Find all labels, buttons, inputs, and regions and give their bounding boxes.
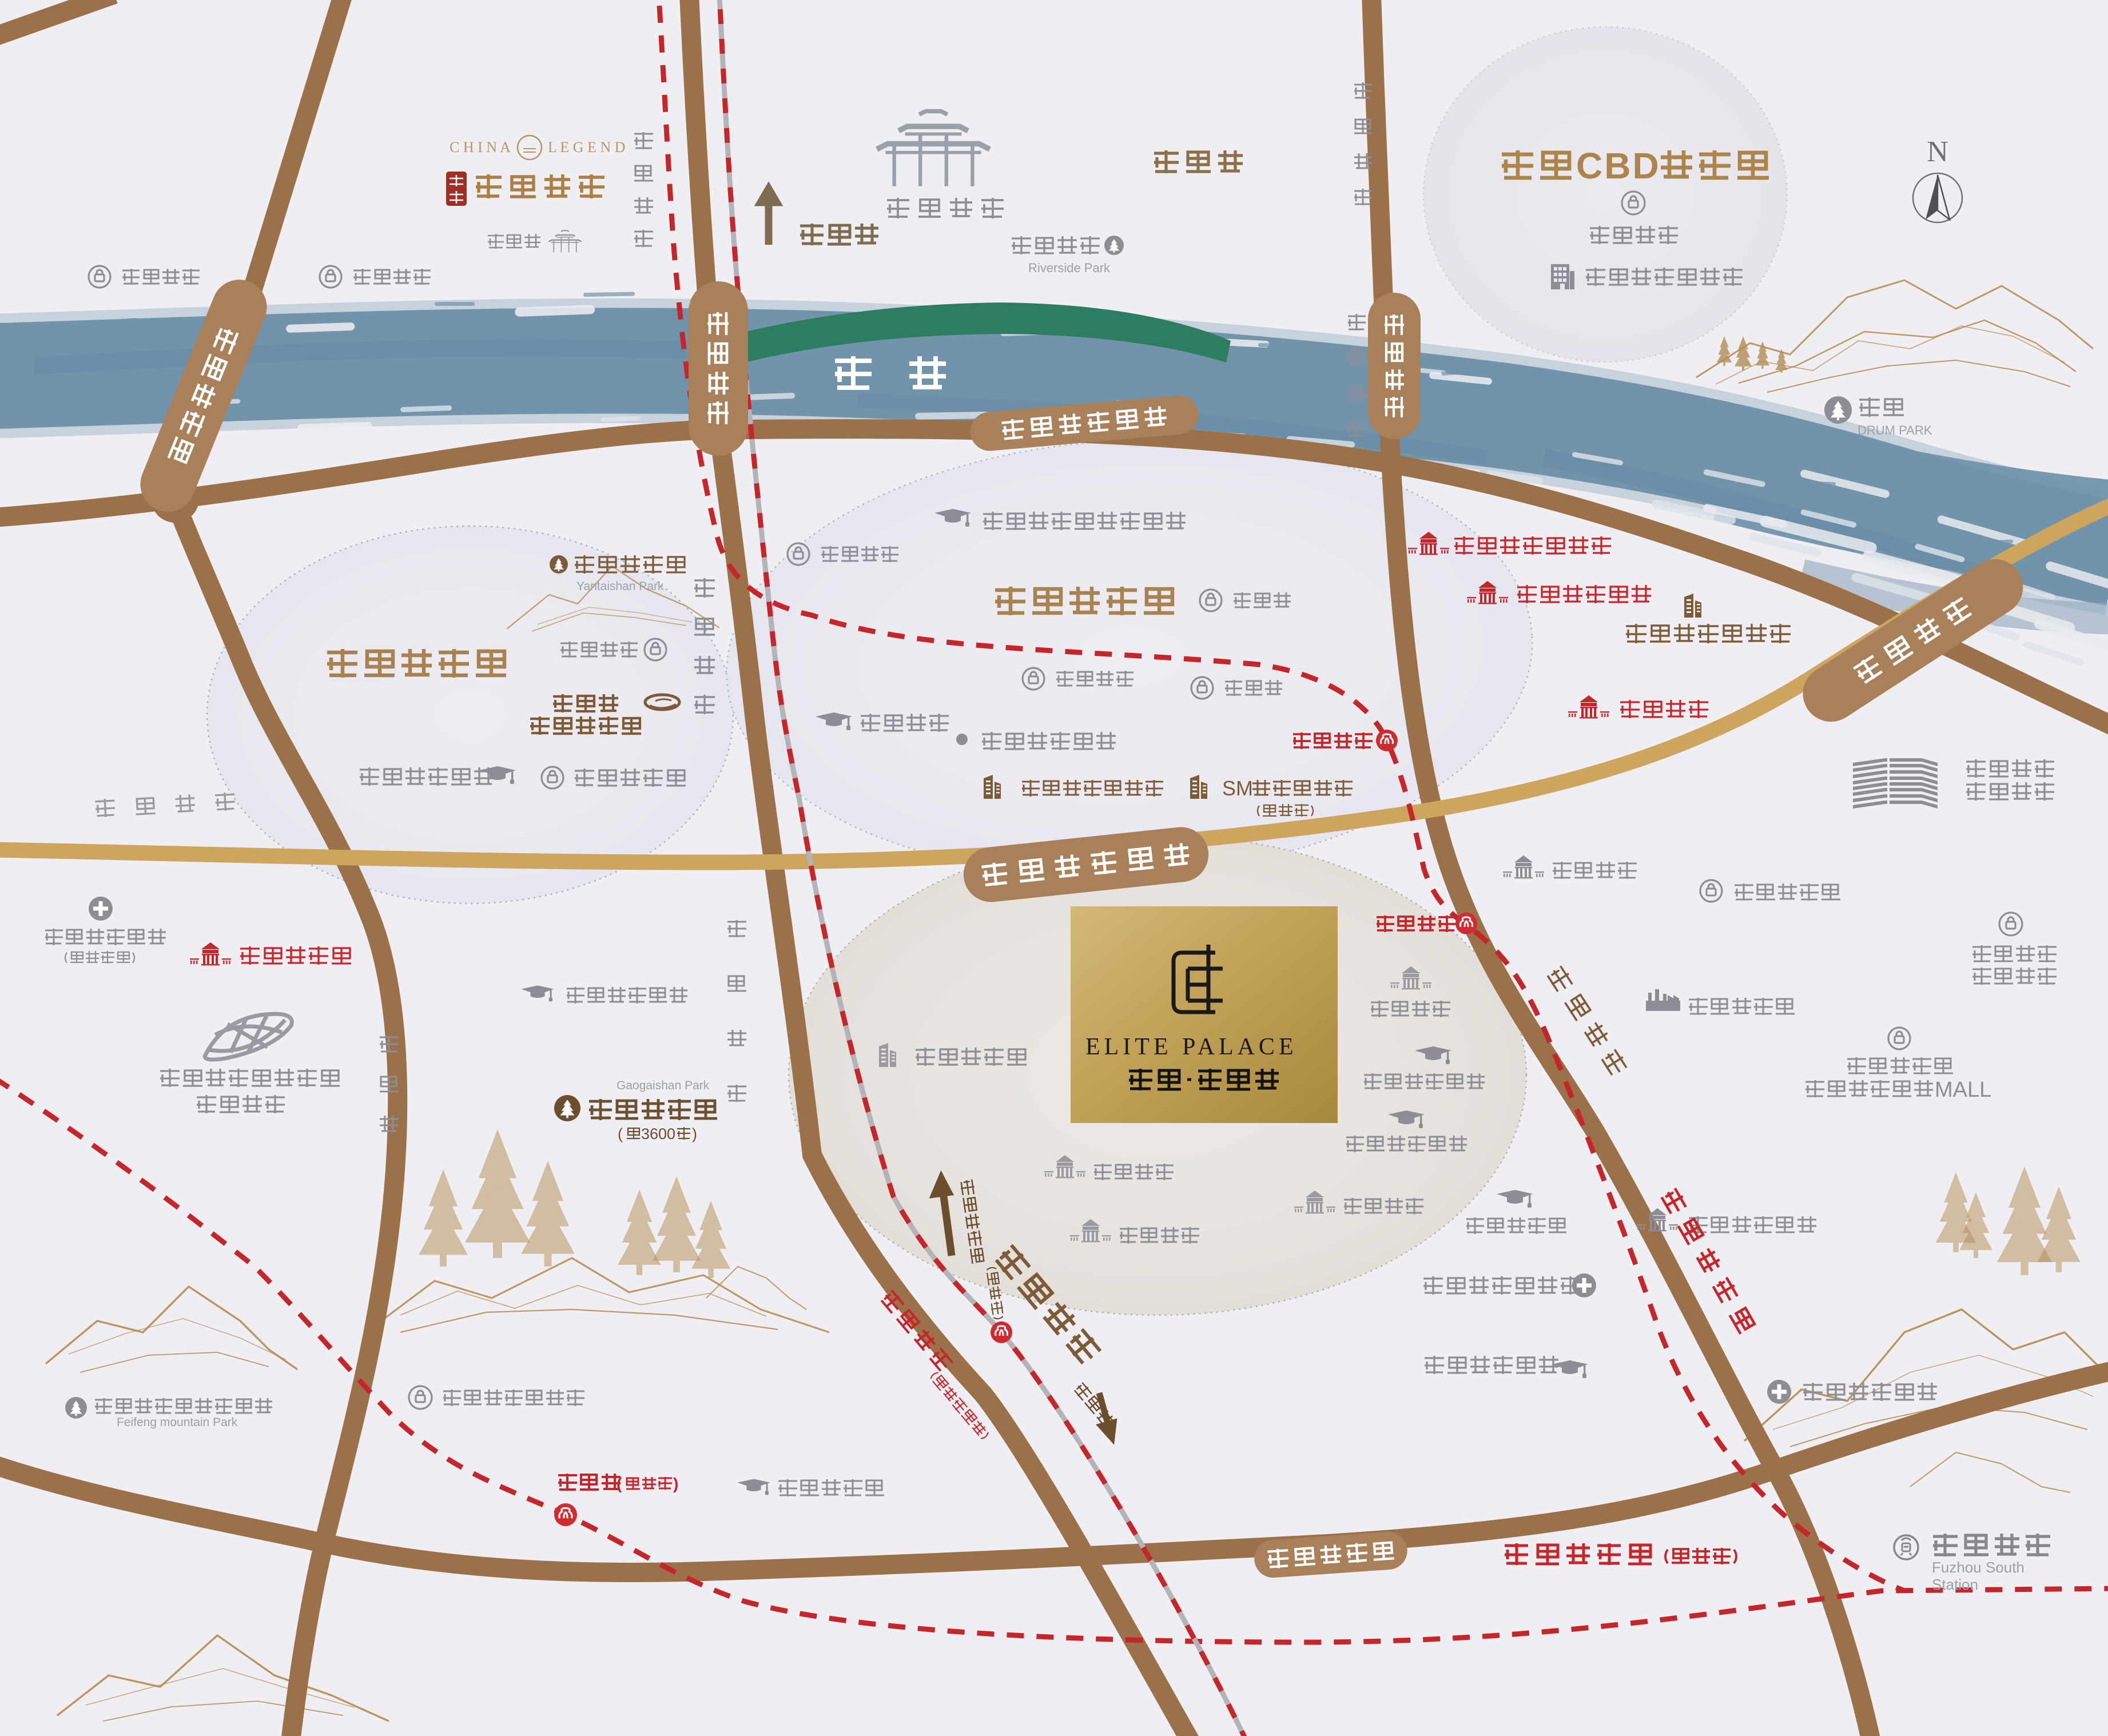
- svg-text:Feifeng mountain Park: Feifeng mountain Park: [117, 1416, 238, 1429]
- svg-text:L E G E N D: L E G E N D: [548, 139, 626, 156]
- svg-text:Yantaishan Park: Yantaishan Park: [576, 580, 664, 593]
- svg-text:C H I N A: C H I N A: [450, 139, 511, 156]
- svg-text:CBD: CBD: [1576, 145, 1661, 186]
- svg-text:DRUM PARK: DRUM PARK: [1858, 423, 1932, 437]
- svg-text:Fuzhou South: Fuzhou South: [1932, 1559, 2025, 1576]
- svg-text:(: (: [617, 1475, 622, 1492]
- svg-text:SM: SM: [1222, 777, 1253, 800]
- svg-text:Riverside Park: Riverside Park: [1028, 261, 1111, 275]
- svg-text:): ): [692, 1125, 697, 1142]
- svg-text:MALL: MALL: [1935, 1078, 1991, 1102]
- svg-text:Gaogaishan Park: Gaogaishan Park: [617, 1079, 710, 1092]
- svg-text:3600: 3600: [641, 1125, 675, 1142]
- svg-text:N: N: [1927, 136, 1948, 168]
- svg-text:): ): [673, 1475, 678, 1492]
- svg-text:(: (: [618, 1125, 623, 1142]
- svg-text:Station: Station: [1932, 1576, 1978, 1593]
- svg-text:ELITE PALACE: ELITE PALACE: [1085, 1034, 1298, 1060]
